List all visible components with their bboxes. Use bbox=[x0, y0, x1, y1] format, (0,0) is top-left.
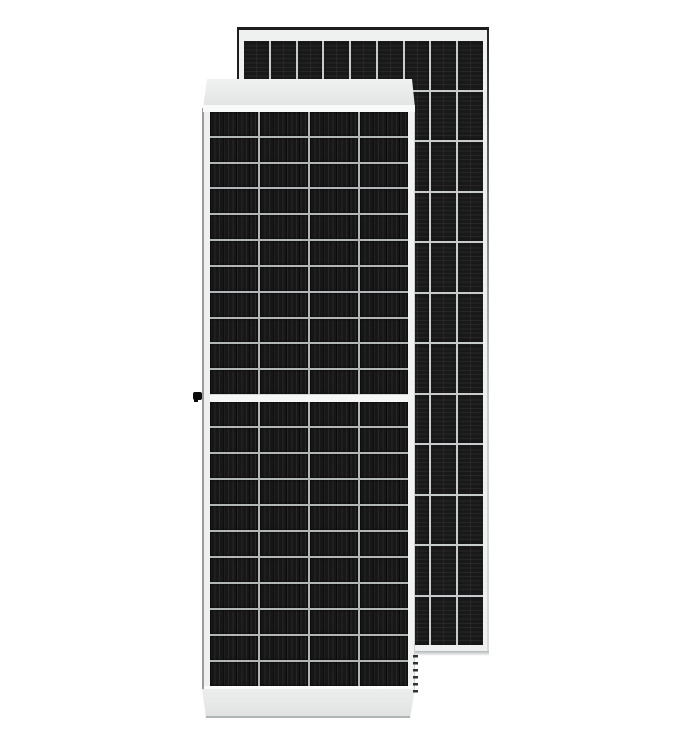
solar-cell-front bbox=[260, 610, 308, 634]
solar-cell-front bbox=[360, 662, 408, 686]
solar-cell-rear bbox=[458, 395, 483, 444]
solar-cell-front bbox=[260, 636, 308, 660]
solar-cell-front bbox=[260, 532, 308, 556]
front-solar-panel bbox=[202, 79, 415, 718]
product-image-solar-panels bbox=[0, 0, 684, 748]
solar-cell-rear bbox=[458, 41, 483, 90]
solar-cell-front bbox=[360, 267, 408, 291]
solar-cell-front bbox=[310, 215, 358, 239]
solar-cell-front bbox=[360, 215, 408, 239]
solar-cell-front bbox=[210, 428, 258, 452]
solar-cell-front bbox=[260, 215, 308, 239]
front-panel-top-frame bbox=[202, 79, 415, 108]
solar-cell-front bbox=[210, 267, 258, 291]
solar-cell-front bbox=[310, 584, 358, 608]
solar-cell-front bbox=[310, 344, 358, 368]
solar-cell-front bbox=[360, 402, 408, 426]
solar-cell-front bbox=[260, 138, 308, 162]
solar-cell-front bbox=[210, 138, 258, 162]
solar-cell-rear bbox=[431, 445, 456, 494]
solar-cell-front bbox=[210, 584, 258, 608]
solar-cell-front bbox=[310, 370, 358, 394]
solar-cell-front bbox=[210, 344, 258, 368]
solar-cell-front bbox=[260, 112, 308, 136]
front-panel-cell-grid-upper bbox=[210, 112, 408, 394]
solar-cell-rear bbox=[431, 193, 456, 242]
solar-cell-front bbox=[210, 506, 258, 530]
solar-cell-front bbox=[310, 319, 358, 343]
solar-cell-front bbox=[360, 636, 408, 660]
solar-cell-front bbox=[360, 584, 408, 608]
solar-cell-front bbox=[210, 662, 258, 686]
solar-cell-rear bbox=[431, 395, 456, 444]
solar-cell-rear bbox=[458, 193, 483, 242]
solar-cell-front bbox=[310, 402, 358, 426]
solar-cell-rear bbox=[431, 496, 456, 545]
solar-cell-front bbox=[260, 428, 308, 452]
solar-cell-front bbox=[260, 164, 308, 188]
solar-cell-rear bbox=[458, 294, 483, 343]
front-panel-center-gap bbox=[210, 394, 408, 402]
solar-cell-rear bbox=[431, 142, 456, 191]
solar-cell-rear bbox=[431, 243, 456, 292]
solar-cell-front bbox=[360, 480, 408, 504]
solar-cell-front bbox=[360, 370, 408, 394]
solar-cell-front bbox=[210, 610, 258, 634]
solar-cell-front bbox=[360, 610, 408, 634]
solar-cell-rear bbox=[431, 41, 456, 90]
solar-cell-front bbox=[260, 506, 308, 530]
solar-cell-front bbox=[360, 241, 408, 265]
solar-cell-front bbox=[260, 293, 308, 317]
front-panel-cell-grid-lower bbox=[210, 402, 408, 686]
solar-cell-rear bbox=[458, 142, 483, 191]
frame-drain-holes bbox=[413, 655, 418, 693]
rear-panel-right-edge bbox=[487, 30, 489, 651]
solar-cell-rear bbox=[431, 344, 456, 393]
solar-cell-front bbox=[210, 293, 258, 317]
solar-cell-front bbox=[260, 370, 308, 394]
solar-cell-front bbox=[360, 189, 408, 213]
solar-cell-front bbox=[310, 164, 358, 188]
solar-cell-front bbox=[260, 584, 308, 608]
solar-cell-rear bbox=[458, 344, 483, 393]
solar-cell-rear bbox=[431, 294, 456, 343]
solar-cell-front bbox=[260, 558, 308, 582]
solar-cell-front bbox=[210, 241, 258, 265]
solar-cell-front bbox=[360, 506, 408, 530]
solar-cell-rear bbox=[458, 597, 483, 646]
solar-cell-rear bbox=[458, 243, 483, 292]
solar-cell-front bbox=[360, 138, 408, 162]
solar-cell-front bbox=[260, 402, 308, 426]
solar-cell-front bbox=[360, 319, 408, 343]
solar-cell-front bbox=[310, 189, 358, 213]
solar-cell-front bbox=[310, 428, 358, 452]
solar-cell-rear bbox=[458, 445, 483, 494]
grounding-lug-tab bbox=[194, 399, 198, 402]
solar-cell-front bbox=[310, 267, 358, 291]
solar-cell-front bbox=[210, 164, 258, 188]
solar-cell-front bbox=[310, 112, 358, 136]
solar-cell-rear bbox=[431, 92, 456, 141]
solar-cell-front bbox=[310, 454, 358, 478]
solar-cell-front bbox=[210, 532, 258, 556]
solar-cell-front bbox=[310, 558, 358, 582]
solar-cell-front bbox=[260, 662, 308, 686]
solar-cell-rear bbox=[431, 546, 456, 595]
solar-cell-front bbox=[360, 344, 408, 368]
solar-cell-front bbox=[210, 319, 258, 343]
solar-cell-front bbox=[210, 112, 258, 136]
front-panel-right-frame bbox=[408, 108, 415, 690]
solar-cell-front bbox=[210, 480, 258, 504]
solar-cell-front bbox=[260, 344, 308, 368]
solar-cell-front bbox=[260, 454, 308, 478]
solar-cell-front bbox=[210, 189, 258, 213]
solar-cell-rear bbox=[431, 597, 456, 646]
solar-cell-front bbox=[310, 636, 358, 660]
solar-cell-front bbox=[310, 662, 358, 686]
solar-cell-front bbox=[360, 293, 408, 317]
solar-cell-front bbox=[260, 480, 308, 504]
solar-cell-front bbox=[310, 480, 358, 504]
front-panel-bottom-frame bbox=[202, 689, 415, 718]
solar-cell-front bbox=[210, 370, 258, 394]
solar-cell-front bbox=[310, 506, 358, 530]
solar-cell-front bbox=[210, 402, 258, 426]
solar-cell-front bbox=[260, 241, 308, 265]
solar-cell-front bbox=[260, 189, 308, 213]
solar-cell-front bbox=[360, 454, 408, 478]
solar-cell-front bbox=[310, 532, 358, 556]
solar-cell-rear bbox=[458, 496, 483, 545]
solar-cell-front bbox=[360, 164, 408, 188]
front-panel-top-highlight bbox=[203, 105, 415, 112]
solar-cell-rear bbox=[458, 546, 483, 595]
solar-cell-front bbox=[210, 636, 258, 660]
solar-cell-front bbox=[310, 138, 358, 162]
solar-cell-front bbox=[360, 112, 408, 136]
solar-cell-front bbox=[360, 532, 408, 556]
solar-cell-rear bbox=[458, 92, 483, 141]
solar-cell-front bbox=[360, 558, 408, 582]
solar-cell-front bbox=[360, 428, 408, 452]
solar-cell-front bbox=[210, 558, 258, 582]
solar-cell-front bbox=[310, 293, 358, 317]
solar-cell-front bbox=[260, 267, 308, 291]
solar-cell-front bbox=[210, 454, 258, 478]
solar-cell-front bbox=[310, 610, 358, 634]
solar-cell-front bbox=[210, 215, 258, 239]
solar-cell-front bbox=[310, 241, 358, 265]
solar-cell-front bbox=[260, 319, 308, 343]
